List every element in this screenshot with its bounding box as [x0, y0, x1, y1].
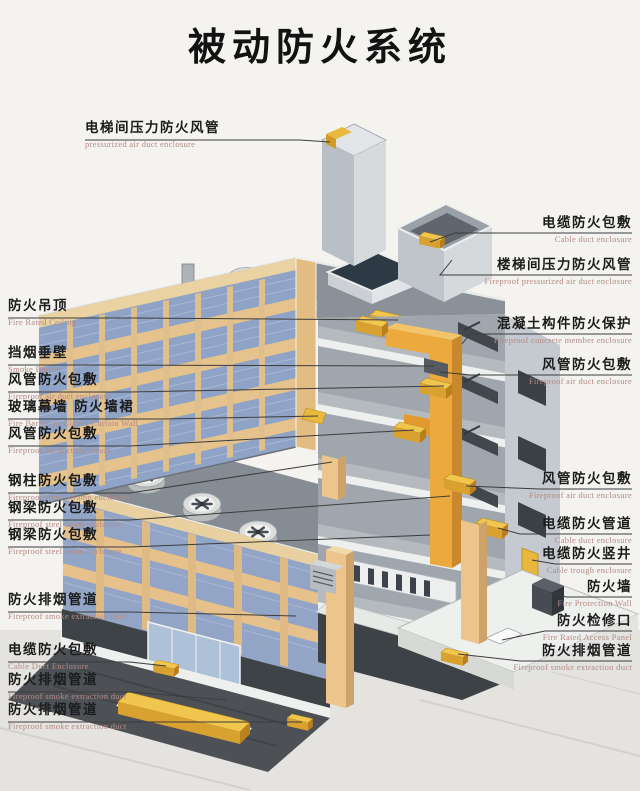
cut-column [461, 520, 487, 644]
diagram-page: 被动防火系统 [0, 0, 640, 791]
rooftop-unit [182, 264, 194, 284]
tower-facade [38, 258, 346, 505]
cooling-fan [183, 493, 221, 521]
elevator-shaft [322, 124, 386, 266]
building-illustration [0, 0, 640, 791]
steel-column-wrap [322, 455, 346, 500]
